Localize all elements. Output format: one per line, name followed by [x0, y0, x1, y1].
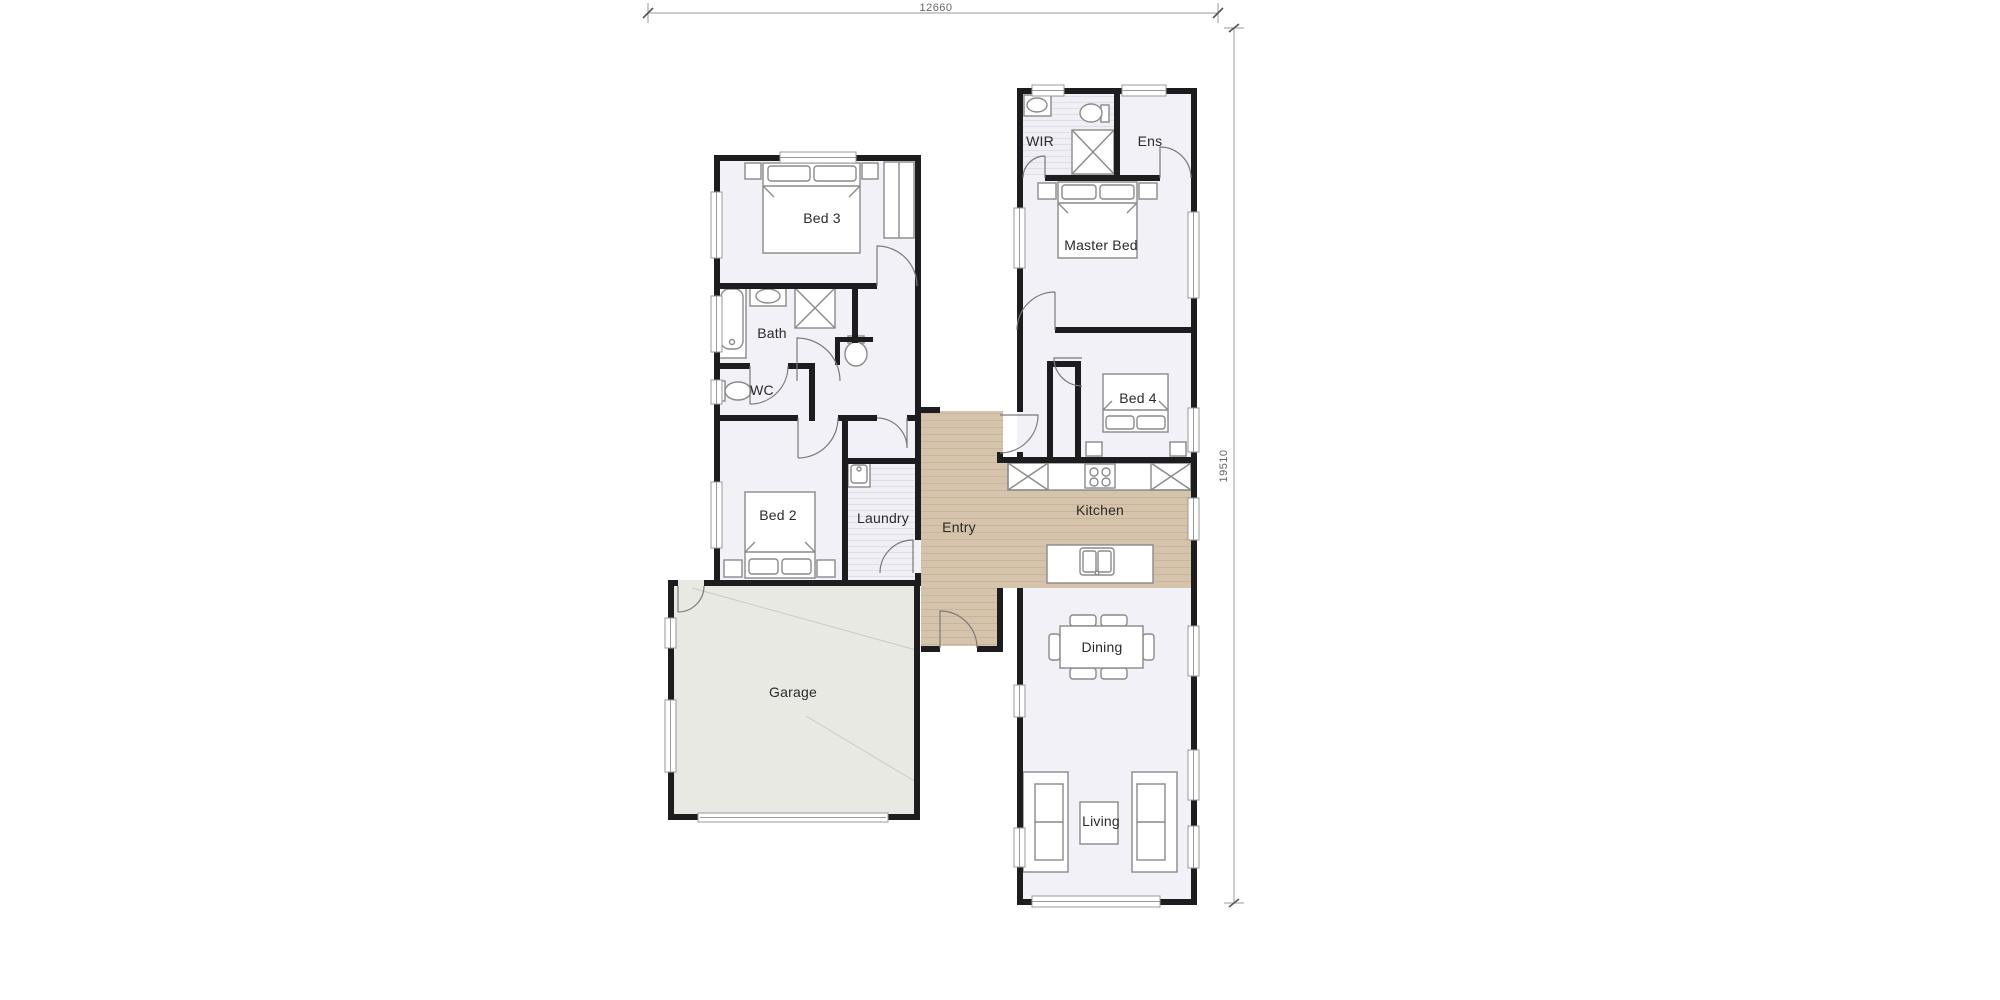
- room-label-living: Living: [1082, 813, 1120, 829]
- room-label-entry: Entry: [942, 519, 976, 535]
- shower-icon-bath: [795, 288, 835, 328]
- height-dimension-label: 19510: [1218, 449, 1230, 482]
- room-label-master-bed: Master Bed: [1064, 237, 1138, 253]
- room-label-bath: Bath: [757, 325, 787, 341]
- room-label-wir: WIR: [1026, 133, 1054, 149]
- vanity-sink-icon-ens: [1024, 95, 1051, 116]
- room-label-bed4: Bed 4: [1119, 390, 1157, 406]
- toilet-icon-ens: [1080, 104, 1109, 122]
- room-label-kitchen: Kitchen: [1076, 502, 1124, 518]
- room-label-bed2: Bed 2: [759, 507, 797, 523]
- room-label-garage: Garage: [769, 684, 817, 700]
- bed-icon-bed3: [745, 163, 878, 253]
- kitchen-bench: [1008, 463, 1191, 490]
- room-label-bed3: Bed 3: [803, 210, 841, 226]
- wardrobe-icon-bed3: [884, 162, 914, 238]
- width-dimension-label: 12660: [919, 2, 952, 14]
- floor-plan-linework: [0, 0, 2000, 1000]
- sofa-icon-right: [1132, 772, 1177, 872]
- kitchen-island: [1047, 545, 1153, 583]
- room-label-dining: Dining: [1082, 639, 1123, 655]
- sofa-icon-left: [1023, 772, 1068, 872]
- room-label-ens: Ens: [1138, 133, 1163, 149]
- room-label-laundry: Laundry: [857, 510, 909, 526]
- laundry-tub-icon: [848, 462, 870, 487]
- floor-plan-canvas: Bed 3 Bath WC Bed 2 Laundry Entry Garage…: [0, 0, 2000, 1000]
- room-label-wc: WC: [750, 382, 774, 398]
- shower-icon-ens: [1072, 130, 1114, 174]
